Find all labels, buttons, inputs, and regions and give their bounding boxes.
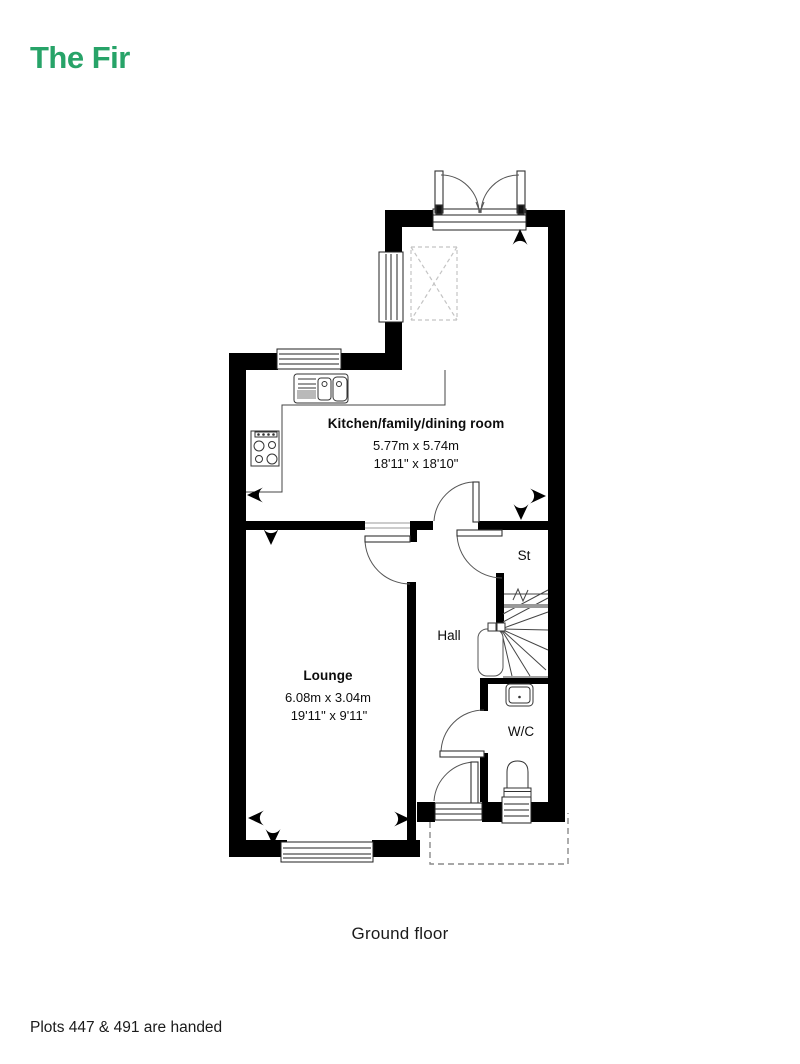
- dimension-arrow: [248, 811, 264, 826]
- lounge-label: Lounge: [303, 668, 353, 683]
- lounge-dim-imperial: 19'11" x 9'11": [291, 708, 368, 723]
- dimension-arrow: [513, 229, 528, 245]
- footer-note: Plots 447 & 491 are handed: [30, 1019, 222, 1037]
- kitchen-dim-imperial: 18'11" x 18'10": [374, 456, 459, 471]
- wc-label: W/C: [508, 724, 534, 739]
- lounge-dim-metric: 6.08m x 3.04m: [285, 690, 371, 705]
- lounge-door: [365, 523, 410, 584]
- french-doors: [435, 171, 525, 214]
- dimension-arrow: [264, 529, 279, 545]
- floorplan-page: The Fir: [0, 0, 800, 1064]
- hob: [251, 431, 279, 466]
- front-door: [434, 762, 478, 803]
- kitchen-dim-metric: 5.77m x 5.74m: [373, 438, 459, 453]
- stairs: [478, 589, 548, 677]
- kitchen-side-window: [379, 252, 403, 322]
- sink: [294, 374, 348, 403]
- floorplan-drawing: Kitchen/family/dining room 5.77m x 5.74m…: [0, 0, 800, 1064]
- store-label: St: [518, 548, 531, 563]
- wc-door: [440, 710, 484, 757]
- floor-caption: Ground floor: [0, 924, 800, 944]
- interior-walls: [246, 521, 548, 840]
- lounge-window: [281, 842, 373, 862]
- hall-label: Hall: [437, 628, 460, 643]
- front-door-threshold: [435, 803, 482, 820]
- store-door: [457, 530, 502, 578]
- dimension-arrow: [247, 488, 263, 503]
- basin: [506, 684, 533, 706]
- wc-window: [502, 797, 531, 823]
- dimension-arrow: [530, 489, 546, 504]
- kitchen-label: Kitchen/family/dining room: [328, 416, 505, 431]
- dimension-arrow: [514, 504, 529, 520]
- kitchen-hall-door: [434, 482, 479, 522]
- toilet: [504, 761, 531, 797]
- rooflight: [411, 247, 457, 320]
- kitchen-window: [277, 349, 341, 369]
